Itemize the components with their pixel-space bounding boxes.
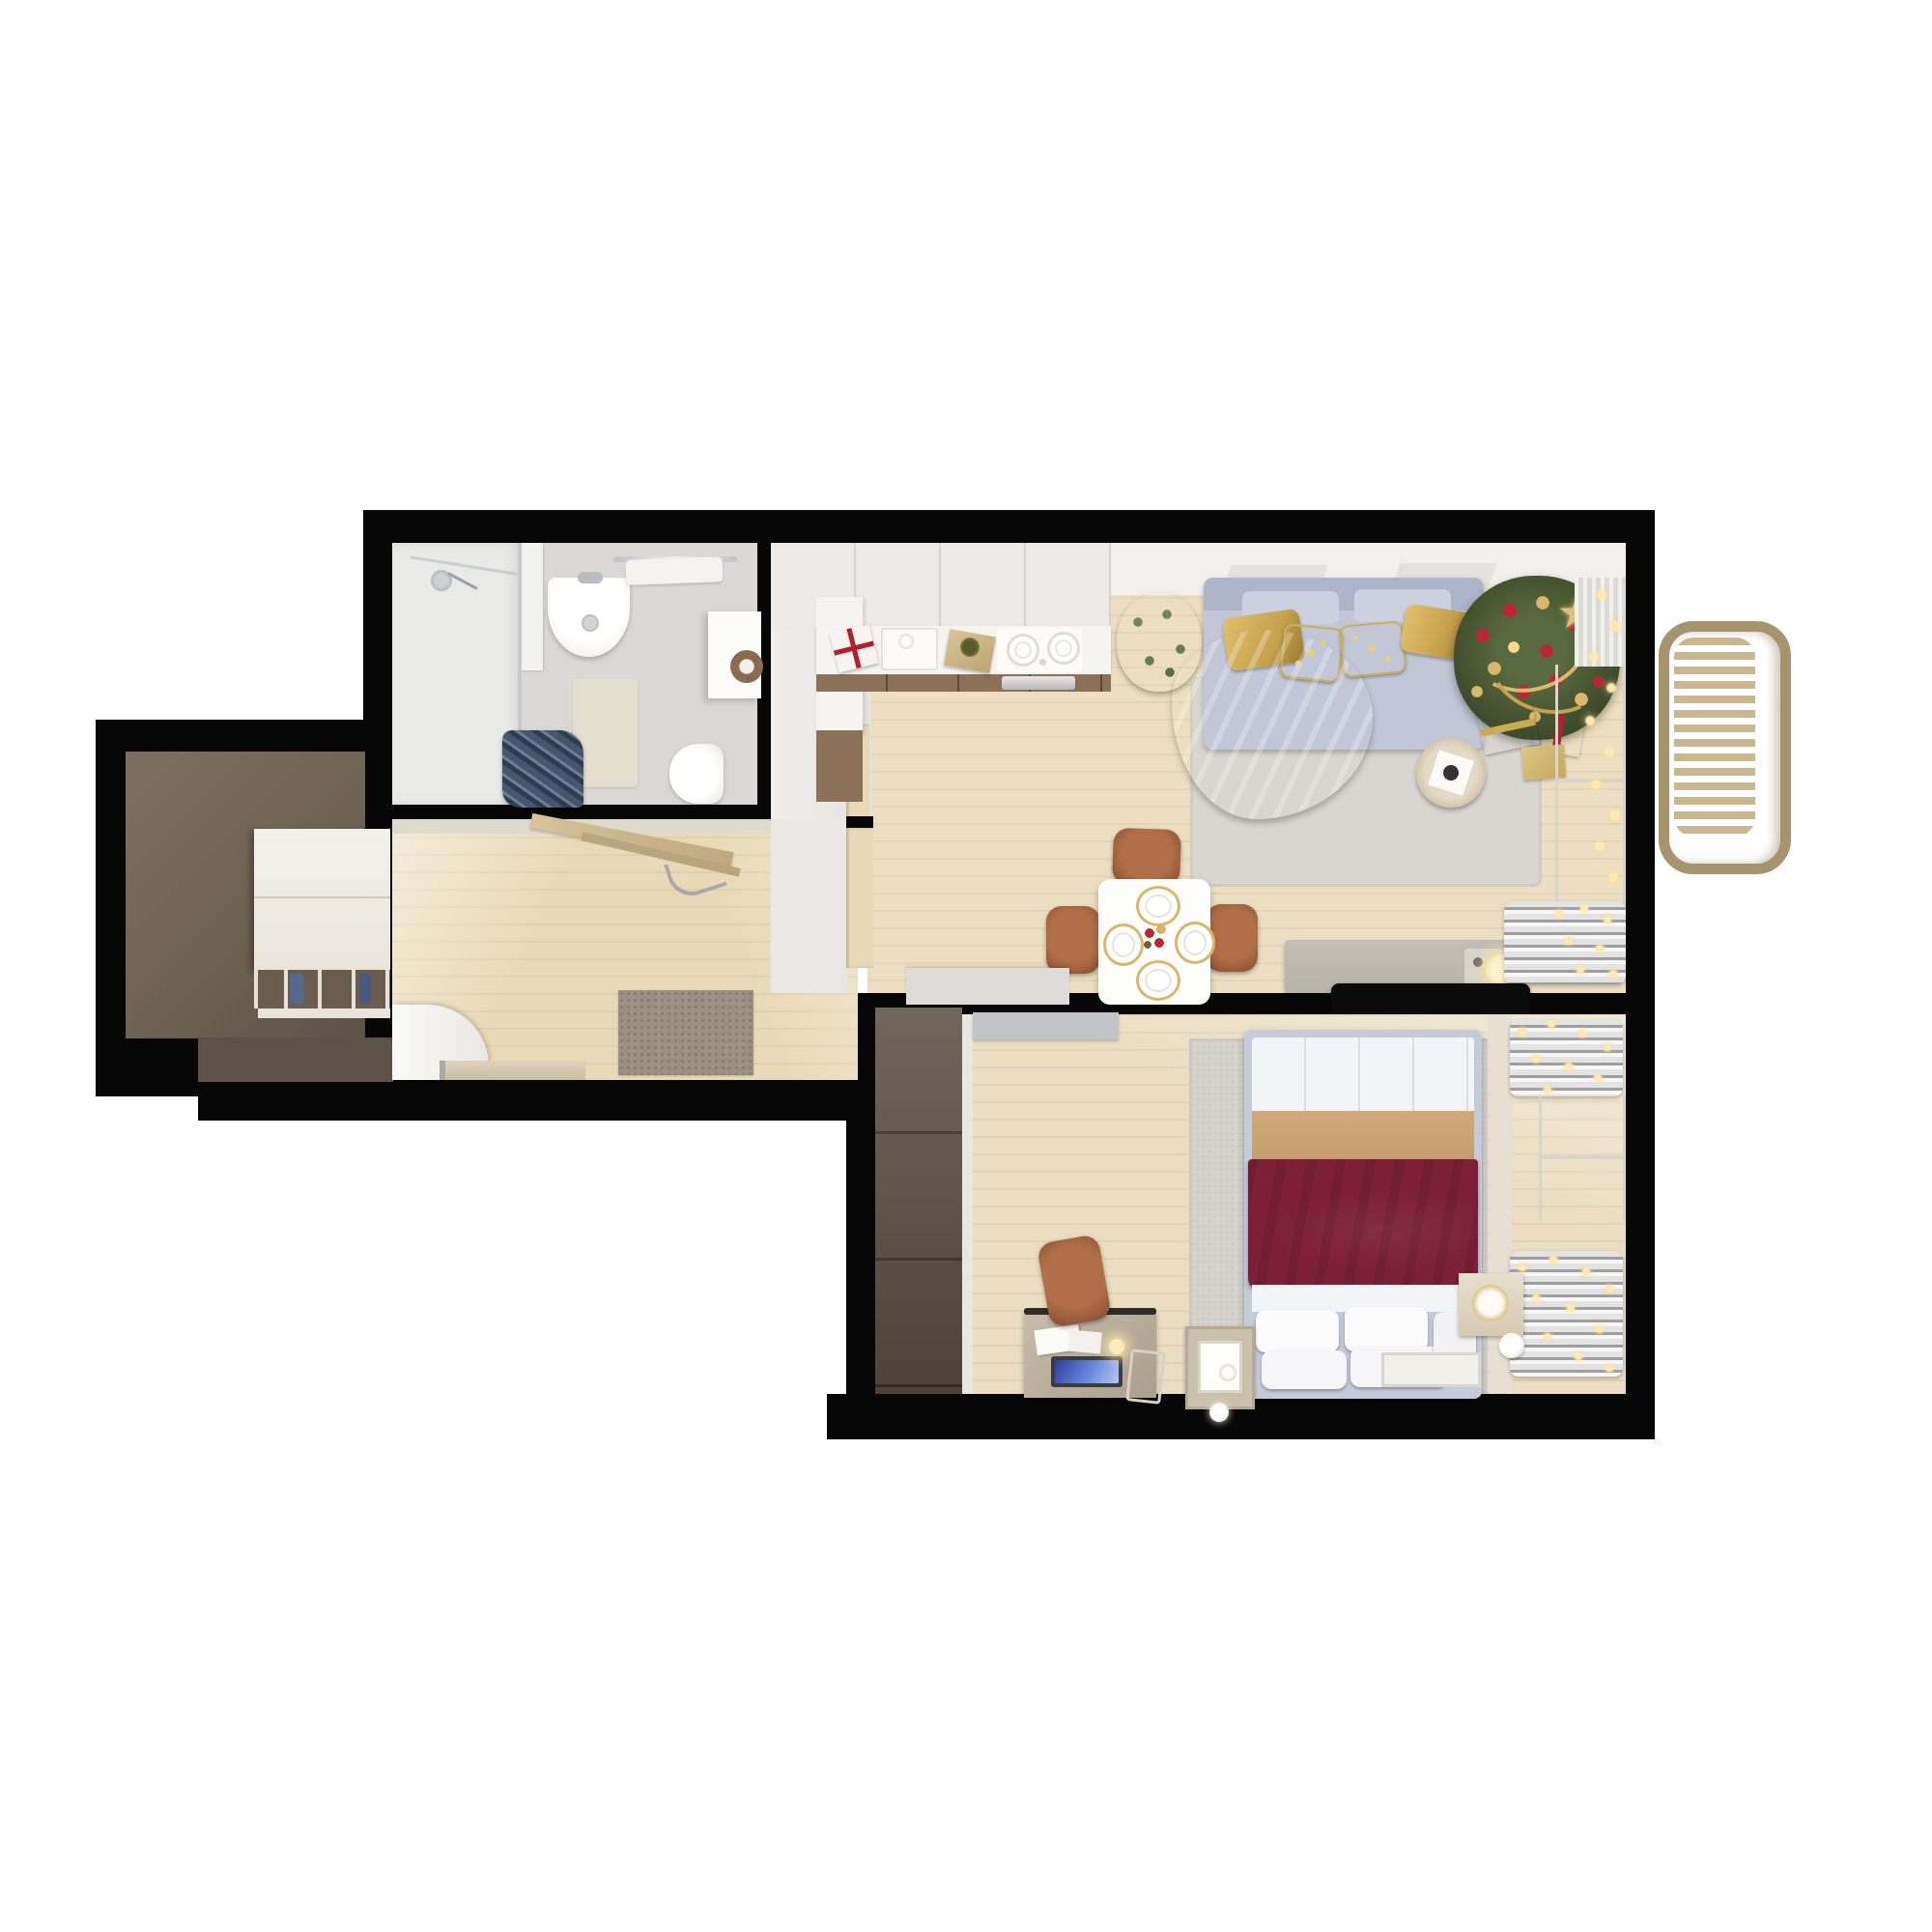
desk-papers-2	[1067, 1330, 1102, 1354]
hallway-bench-board	[440, 1061, 585, 1080]
sliding-door-panel	[973, 1012, 1119, 1039]
bedroom-wardrobe	[875, 1008, 962, 1394]
wall-corridor-bottom	[363, 1080, 877, 1121]
wall-entry-top	[96, 720, 392, 752]
bathroom-divider-wall	[522, 543, 543, 670]
plate-bottom	[1136, 960, 1180, 1001]
living-radiator-garland	[1546, 898, 1629, 987]
basin-faucet-icon	[578, 572, 603, 583]
fairy-lights-string	[1573, 580, 1631, 898]
table-centerpiece	[1138, 920, 1175, 956]
dining-chair-top	[1112, 828, 1181, 886]
basin-drain	[582, 614, 599, 632]
wall-entry-bottom-right	[198, 1082, 392, 1121]
toilet	[669, 744, 724, 804]
towel-on-rail	[626, 556, 724, 584]
magazine-rack	[1125, 1349, 1165, 1404]
gift-green-bow-knot	[960, 638, 980, 657]
small-white-lamp	[1209, 1403, 1229, 1422]
bed-floor-mat	[1381, 1352, 1481, 1387]
bedroom-window	[1539, 1095, 1626, 1221]
cooktop-burner-2	[1047, 632, 1080, 665]
sink-faucet-icon	[898, 634, 914, 649]
bed-throw-tan	[1252, 1111, 1474, 1163]
photo-frame-disc	[1219, 1364, 1236, 1381]
bedspread-burgundy	[1248, 1159, 1478, 1289]
bed-sheet-top	[1252, 1037, 1474, 1113]
living-west-wall-lower	[771, 819, 848, 993]
shoes-blue	[290, 974, 303, 1004]
plate-left	[1103, 923, 1144, 966]
entry-wardrobe	[254, 829, 390, 970]
laptop-screen	[1055, 1360, 1119, 1383]
floor-plan-render: ★	[0, 0, 1932, 1932]
kitchen-cabinet-face-left	[816, 730, 863, 802]
side-table-decor	[1443, 765, 1459, 781]
entry-floor-lower	[198, 1037, 393, 1082]
doormat	[618, 990, 753, 1075]
doorway-wall-stub	[846, 816, 873, 828]
gold-clock	[1472, 1285, 1509, 1321]
cooktop-burner-1	[1007, 634, 1039, 667]
floor-spotlight	[1499, 1333, 1524, 1358]
towel-radiator	[502, 730, 583, 808]
oven-front	[1002, 676, 1075, 690]
tv	[1331, 983, 1530, 1018]
wall-top	[363, 510, 1654, 543]
entry-wardrobe-base	[258, 1009, 390, 1018]
cooktop-knob	[1039, 659, 1046, 666]
dining-chair-left	[1046, 906, 1100, 974]
shoes-blue-2	[359, 974, 371, 1004]
bed-pillow-1	[1256, 1310, 1339, 1352]
bed-pillow-2	[1345, 1307, 1428, 1351]
wardrobe-edge-strip	[962, 1014, 973, 1394]
white-console	[906, 968, 1069, 1005]
plate-right	[1175, 922, 1215, 964]
desk-lamp-glow	[1109, 1339, 1124, 1354]
wall-entry-right-stub	[364, 742, 392, 831]
wreath-basket	[730, 650, 763, 683]
entry-wardrobe-seam	[254, 896, 390, 898]
doorway-to-hallway	[846, 828, 873, 968]
bed-pillow-3	[1262, 1350, 1347, 1389]
bedroom-radiator-top-garland	[1507, 1014, 1627, 1103]
balcony-railing-slats	[1674, 638, 1755, 837]
